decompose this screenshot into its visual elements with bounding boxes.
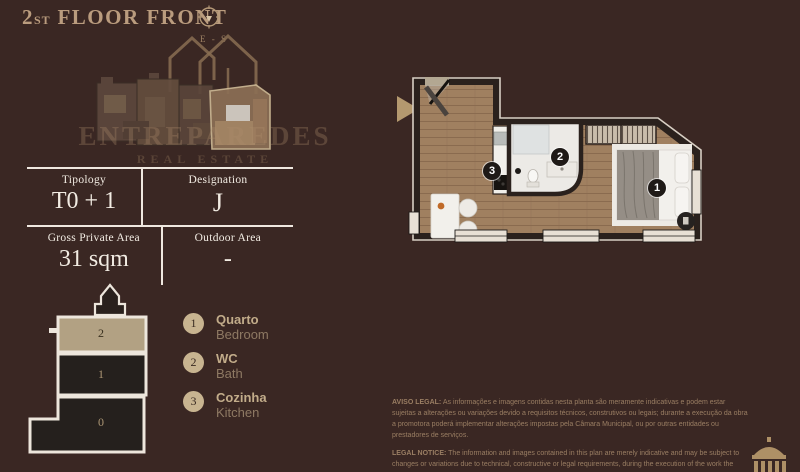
floor-label-2: 2	[94, 326, 108, 341]
gross-area-label: Gross Private Area	[29, 232, 159, 244]
tipology-cell: Tipology T0 + 1	[27, 169, 143, 225]
designation-cell: Designation J	[143, 169, 293, 225]
room-legend: 1 Quarto Bedroom 2 WC Bath 3 Cozinha Kit…	[183, 313, 269, 430]
brand-tagline-watermark: REAL ESTATE	[55, 152, 355, 167]
outdoor-area-cell: Outdoor Area -	[163, 227, 293, 285]
tipology-label: Tipology	[29, 174, 139, 186]
legend-label-pt: WC	[216, 352, 243, 367]
legend-item-kitchen: 3 Cozinha Kitchen	[183, 391, 269, 421]
monument-icon	[744, 437, 794, 472]
building-section-diagram: 2 1 0	[28, 282, 150, 456]
designation-label: Designation	[145, 174, 291, 186]
legend-number-badge: 2	[183, 352, 204, 373]
floor-plan-rendering	[405, 74, 717, 271]
table-row: Tipology T0 + 1 Designation J	[27, 167, 293, 227]
plan-marker-wc: 2	[551, 148, 569, 166]
legal-notice-pt: AVISO LEGAL: As informações e imagens co…	[392, 398, 748, 441]
legend-label-pt: Quarto	[216, 313, 269, 328]
legend-item-bedroom: 1 Quarto Bedroom	[183, 313, 269, 343]
legend-label-en: Bedroom	[216, 328, 269, 343]
gross-area-value: 31 sqm	[29, 246, 159, 273]
legend-item-wc: 2 WC Bath	[183, 352, 269, 382]
designation-value: J	[145, 188, 291, 218]
legend-label-pt: Cozinha	[216, 391, 267, 406]
legal-pt-text: As informações e imagens contidas nesta …	[392, 399, 748, 439]
tipology-value: T0 + 1	[29, 188, 139, 215]
floor-number: 2	[22, 5, 34, 29]
outdoor-area-value: -	[165, 246, 291, 273]
plan-marker-bedroom: 1	[648, 179, 666, 197]
gross-area-cell: Gross Private Area 31 sqm	[27, 227, 163, 285]
legal-notice: AVISO LEGAL: As informações e imagens co…	[392, 398, 748, 472]
legal-pt-label: AVISO LEGAL:	[392, 399, 441, 406]
table-row: Gross Private Area 31 sqm Outdoor Area -	[27, 227, 293, 285]
brochure-page: 2ST FLOOR FRONT E - S	[0, 0, 800, 472]
floor-label-0: 0	[94, 415, 108, 430]
unit-info-table: Tipology T0 + 1 Designation J Gross Priv…	[27, 167, 293, 285]
legend-label-en: Bath	[216, 367, 243, 382]
legend-label-en: Kitchen	[216, 406, 267, 421]
plan-marker-kitchen: 3	[483, 162, 501, 180]
legal-en-label: LEGAL NOTICE:	[392, 450, 446, 457]
brand-name-watermark: ENTREPAREDES	[55, 121, 355, 152]
legend-number-badge: 3	[183, 391, 204, 412]
outdoor-area-label: Outdoor Area	[165, 232, 291, 244]
legal-notice-en: LEGAL NOTICE: The information and images…	[392, 449, 748, 472]
floor-ordinal: ST	[34, 13, 51, 27]
floor-label-1: 1	[94, 367, 108, 382]
legend-number-badge: 1	[183, 313, 204, 334]
